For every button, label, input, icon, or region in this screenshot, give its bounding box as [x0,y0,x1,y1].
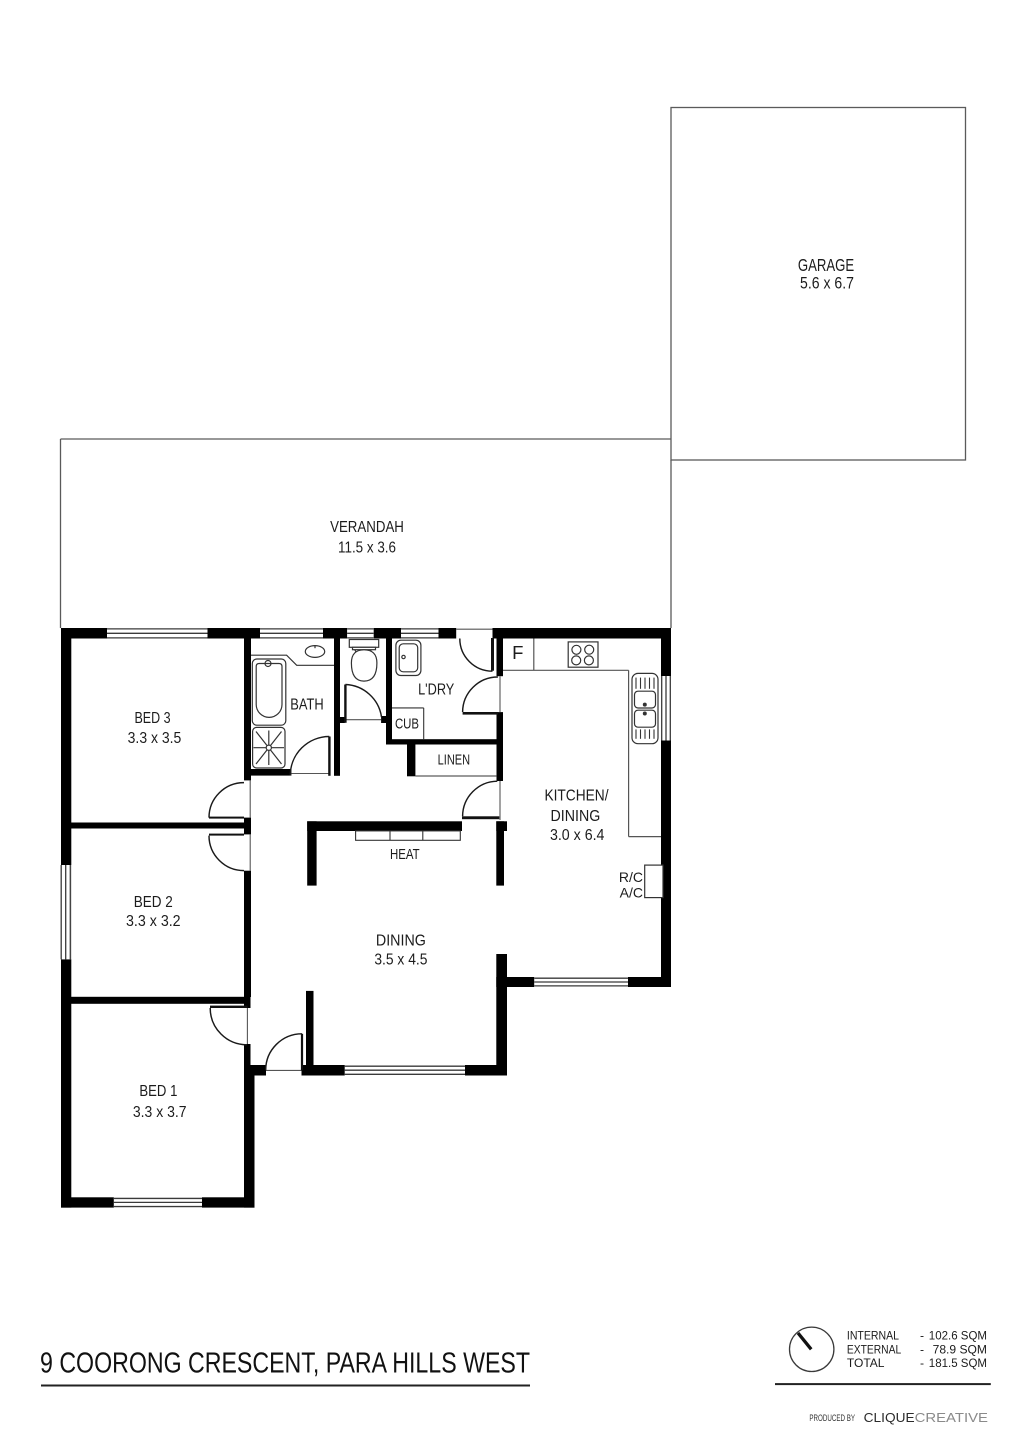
svg-text:3.0 x 6.4: 3.0 x 6.4 [550,827,605,844]
svg-text:78.9 SQM: 78.9 SQM [933,1342,987,1356]
svg-text:5.6 x 6.7: 5.6 x 6.7 [800,274,854,293]
svg-text:TOTAL: TOTAL [847,1356,885,1370]
svg-text:R/C: R/C [619,869,643,885]
svg-text:HEAT: HEAT [390,846,420,863]
svg-text:3.5 x 4.5: 3.5 x 4.5 [374,952,427,969]
svg-text:CREATIVE: CREATIVE [915,1411,988,1425]
svg-text:EXTERNAL: EXTERNAL [847,1342,901,1356]
svg-text:VERANDAH: VERANDAH [330,519,404,536]
svg-text:181.5 SQM: 181.5 SQM [929,1356,987,1370]
svg-text:9 COORONG CRESCENT, PARA HILLS: 9 COORONG CRESCENT, PARA HILLS WEST [40,1348,530,1380]
svg-text:-: - [920,1342,924,1356]
svg-text:DINING: DINING [551,808,601,825]
svg-text:INTERNAL: INTERNAL [847,1329,899,1343]
svg-text:-: - [920,1356,924,1370]
svg-text:3.3 x 3.5: 3.3 x 3.5 [128,730,182,747]
svg-text:DINING: DINING [376,933,426,950]
svg-text:3.3 x 3.2: 3.3 x 3.2 [126,913,181,930]
svg-text:CUB: CUB [395,716,419,732]
svg-text:BATH: BATH [290,696,323,713]
svg-text:3.3 x 3.7: 3.3 x 3.7 [133,1104,187,1121]
svg-text:-: - [920,1329,924,1343]
svg-text:11.5 x 3.6: 11.5 x 3.6 [338,539,396,556]
svg-text:F: F [512,642,523,663]
svg-text:LINEN: LINEN [438,753,471,769]
svg-text:KITCHEN/: KITCHEN/ [544,787,609,804]
svg-text:BED 2: BED 2 [134,894,173,911]
svg-text:L'DRY: L'DRY [418,682,454,699]
svg-text:102.6 SQM: 102.6 SQM [929,1329,987,1343]
svg-text:PRODUCED BY: PRODUCED BY [809,1413,855,1423]
svg-text:CLIQUE: CLIQUE [864,1411,915,1425]
svg-text:BED 1: BED 1 [139,1083,177,1100]
svg-text:A/C: A/C [620,884,643,900]
svg-text:GARAGE: GARAGE [798,255,854,275]
svg-text:BED 3: BED 3 [134,710,170,727]
